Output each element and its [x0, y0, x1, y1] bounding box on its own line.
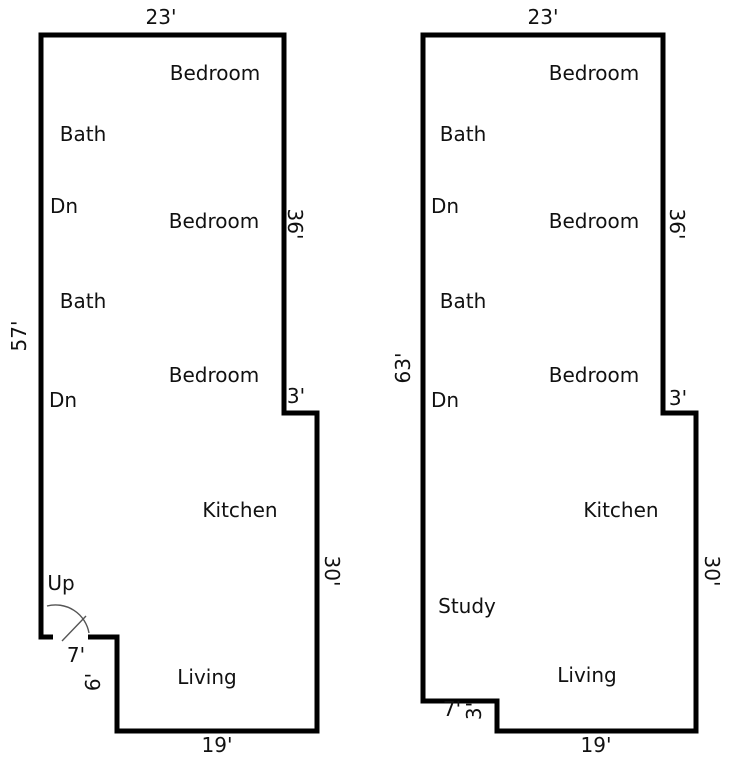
- room-label-bedroom-top: Bedroom: [170, 61, 260, 85]
- stairs-down-label-lower: Dn: [49, 388, 77, 412]
- room-label-kitchen: Kitchen: [583, 498, 658, 522]
- room-label-living: Living: [557, 663, 616, 687]
- stairs-up-label: Up: [47, 571, 74, 595]
- room-label-bedroom-lower: Bedroom: [169, 363, 259, 387]
- right-floor-plan: 23' Bedroom Bath Dn Bedroom 36' Bath 63'…: [391, 5, 724, 757]
- floor-plans-canvas: 23' Bedroom Bath Dn Bedroom 36' Bath 57'…: [0, 0, 744, 766]
- dim-step: 3': [287, 384, 305, 408]
- room-label-bedroom-middle: Bedroom: [549, 209, 639, 233]
- left-floor-plan: 23' Bedroom Bath Dn Bedroom 36' Bath 57'…: [7, 5, 344, 757]
- dim-top-width: 23': [528, 5, 559, 29]
- dim-left-height: 63': [391, 353, 415, 384]
- stairs-down-label-upper: Dn: [431, 194, 459, 218]
- dim-left-height: 57': [7, 321, 31, 352]
- room-label-study: Study: [438, 594, 496, 618]
- room-label-bedroom-top: Bedroom: [549, 61, 639, 85]
- floor-plan-diagram: 23' Bedroom Bath Dn Bedroom 36' Bath 57'…: [0, 0, 744, 766]
- dim-notch-height: 6': [81, 673, 105, 691]
- dim-right-upper: 36': [665, 209, 689, 240]
- dim-step: 3': [669, 386, 687, 410]
- dim-notch-width: 7': [67, 643, 85, 667]
- room-label-living: Living: [177, 665, 236, 689]
- room-label-kitchen: Kitchen: [202, 498, 277, 522]
- dim-notch-height: 3': [462, 702, 486, 720]
- dim-notch-width: 7': [443, 697, 461, 721]
- stairs-down-label-upper: Dn: [50, 194, 78, 218]
- room-label-bath-upper: Bath: [440, 122, 487, 146]
- dim-right-lower: 30': [320, 556, 344, 587]
- room-label-bath-upper: Bath: [60, 122, 107, 146]
- door-leaf-icon: [62, 616, 86, 641]
- dim-right-lower: 30': [700, 556, 724, 587]
- room-label-bedroom-middle: Bedroom: [169, 209, 259, 233]
- dim-bottom-width: 19': [202, 733, 233, 757]
- room-label-bedroom-lower: Bedroom: [549, 363, 639, 387]
- dim-top-width: 23': [146, 5, 177, 29]
- dim-bottom-width: 19': [581, 733, 612, 757]
- stairs-down-label-lower: Dn: [431, 388, 459, 412]
- room-label-bath-lower: Bath: [440, 289, 487, 313]
- room-label-bath-lower: Bath: [60, 289, 107, 313]
- dim-right-upper: 36': [283, 209, 307, 240]
